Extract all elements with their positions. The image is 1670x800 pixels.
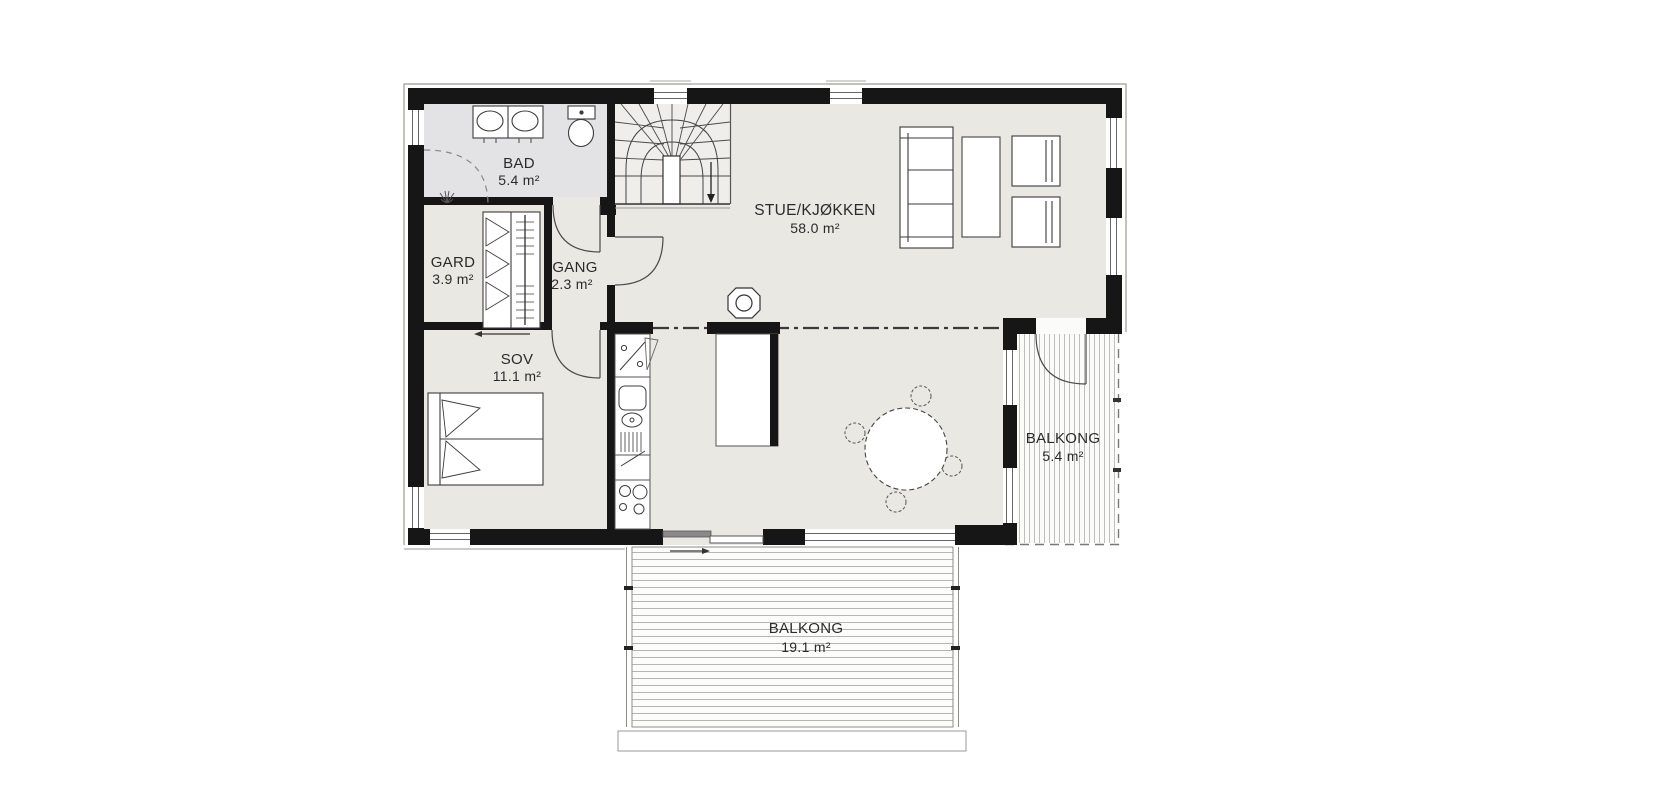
wall-segment bbox=[607, 322, 653, 334]
dining-chair-icon bbox=[911, 386, 931, 406]
room-area-bad: 5.4 m² bbox=[498, 172, 540, 188]
round-dining-table-icon bbox=[865, 408, 947, 490]
dining-chair-icon bbox=[886, 492, 906, 512]
window bbox=[1003, 468, 1017, 523]
wall-segment bbox=[607, 285, 615, 529]
room-label-balkong-east: BALKONG bbox=[1026, 430, 1101, 447]
room-label-sov: SOV bbox=[501, 351, 534, 368]
window bbox=[430, 529, 470, 545]
floor-plan-page: BAD 5.4 m² GARD 3.9 m² GANG 2.3 m² SOV 1… bbox=[0, 0, 1670, 800]
wall-segment bbox=[544, 205, 552, 330]
room-area-gard: 3.9 m² bbox=[432, 271, 474, 287]
room-area-balkong-east: 5.4 m² bbox=[1042, 448, 1084, 464]
double-sink-vanity-icon bbox=[473, 106, 543, 143]
window bbox=[408, 110, 424, 145]
window bbox=[1106, 218, 1122, 275]
wall-segment bbox=[600, 197, 615, 205]
room-label-stue: STUE/KJØKKEN bbox=[754, 202, 876, 219]
window bbox=[1106, 118, 1122, 168]
railing-post bbox=[951, 586, 960, 590]
room-area-gang: 2.3 m² bbox=[551, 276, 593, 292]
railing-post bbox=[951, 646, 960, 650]
coffee-table-icon bbox=[962, 137, 1000, 237]
room-label-gang: GANG bbox=[552, 259, 597, 276]
wall-segment bbox=[408, 88, 424, 545]
wall-segment bbox=[600, 205, 616, 215]
window bbox=[830, 88, 862, 104]
kitchen-island-icon bbox=[707, 322, 780, 446]
wood-stove-icon bbox=[728, 288, 760, 318]
dining-chair-icon bbox=[845, 423, 865, 443]
wardrobe-cabinet-icon bbox=[483, 212, 540, 328]
room-area-balkong-south: 19.1 m² bbox=[781, 639, 831, 655]
room-label-gard: GARD bbox=[431, 254, 476, 271]
railing-post bbox=[624, 646, 633, 650]
double-bed-icon bbox=[428, 393, 543, 485]
armchair-icon bbox=[1012, 136, 1060, 186]
window bbox=[654, 88, 687, 104]
window bbox=[408, 487, 424, 528]
wall-segment bbox=[408, 88, 1122, 104]
room-area-sov: 11.1 m² bbox=[493, 368, 542, 384]
toilet-icon bbox=[568, 106, 595, 147]
floor-plan-drawing: BAD 5.4 m² GARD 3.9 m² GANG 2.3 m² SOV 1… bbox=[0, 0, 1670, 800]
room-label-balkong-south: BALKONG bbox=[769, 620, 844, 637]
railing-post bbox=[624, 586, 633, 590]
window bbox=[805, 529, 955, 545]
room-label-bad: BAD bbox=[503, 155, 535, 172]
wall-segment bbox=[607, 104, 615, 237]
window bbox=[1003, 350, 1017, 405]
railing-post bbox=[1113, 468, 1121, 472]
armchair-icon bbox=[1012, 197, 1060, 247]
railing-post bbox=[1113, 398, 1121, 402]
sofa-icon bbox=[900, 127, 953, 248]
room-area-stue: 58.0 m² bbox=[790, 220, 840, 236]
balcony-fascia bbox=[618, 731, 966, 751]
